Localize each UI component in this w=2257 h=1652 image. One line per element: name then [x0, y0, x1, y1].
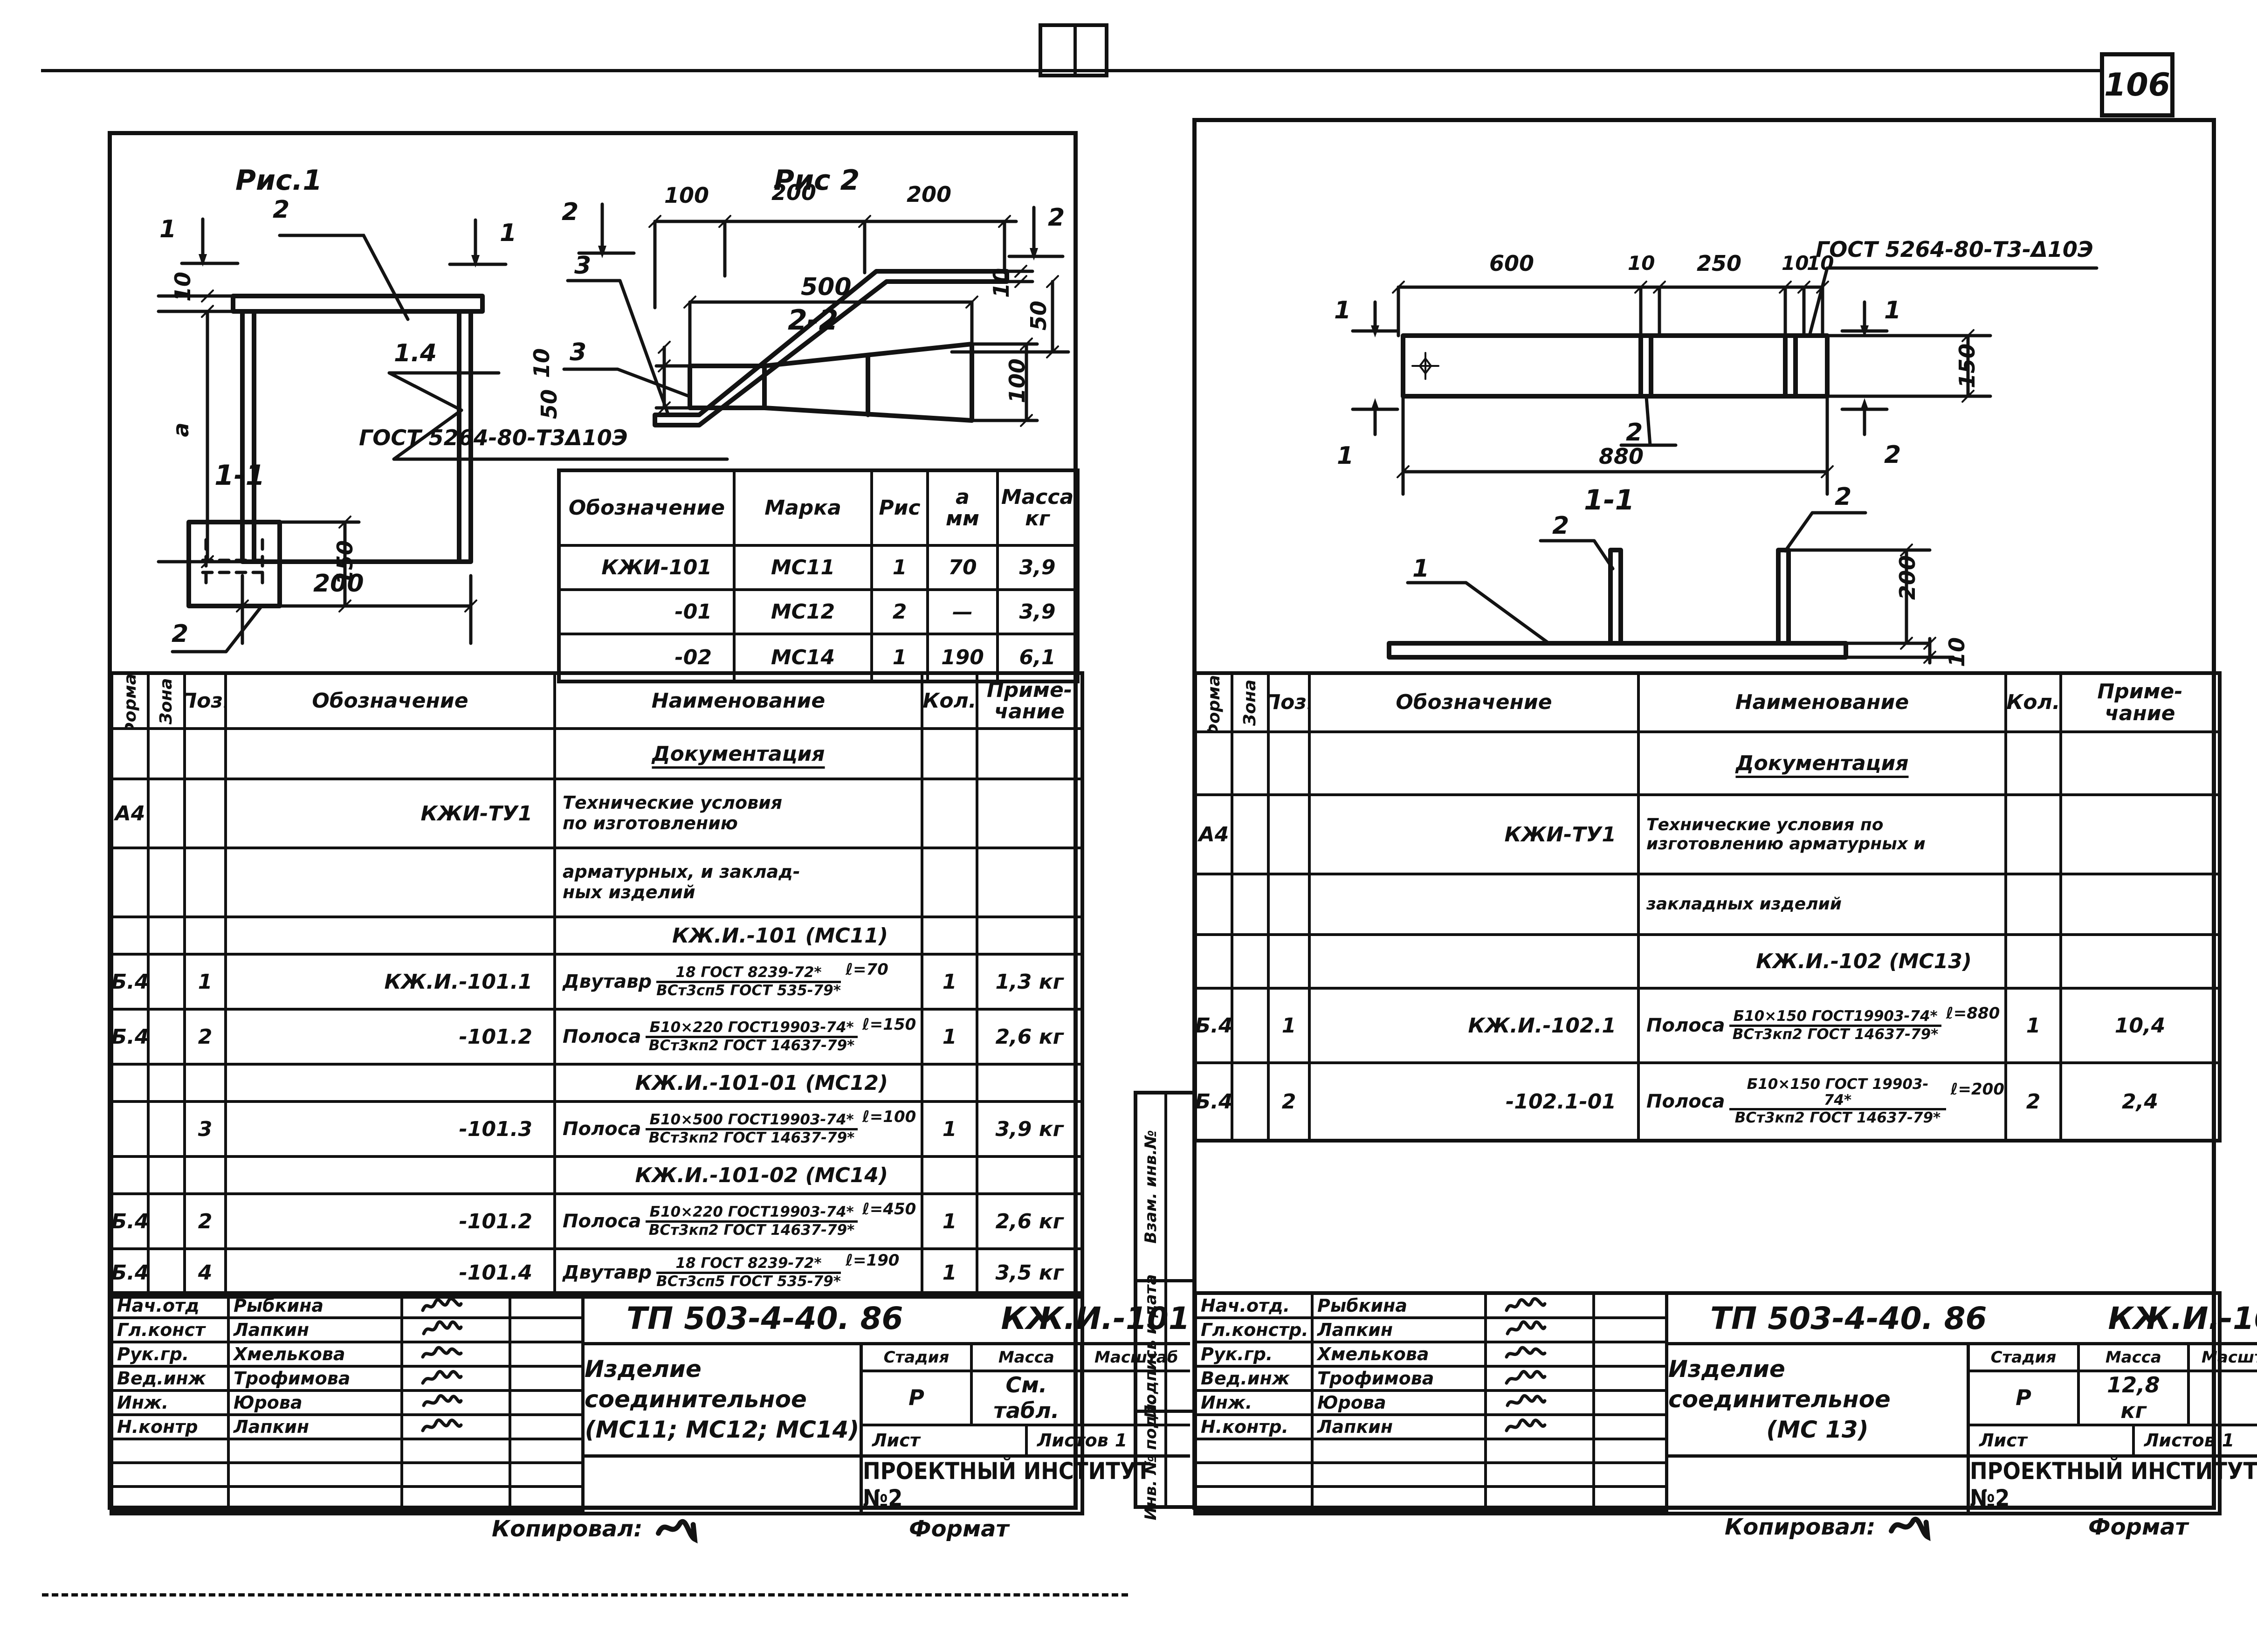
section-label-2a: 2: [1552, 512, 1569, 540]
spec-cell-name: ПолосаБ10×500 ГОСТ19903-74*ВСт3кп2 ГОСТ …: [556, 1103, 923, 1158]
spec-cell-oboz: КЖИ-ТУ1: [1311, 796, 1640, 875]
parts-header-marka: Марка: [736, 472, 873, 547]
fig2-callout-3b: 3: [570, 338, 586, 366]
fig2-dim-50-left: 50: [537, 367, 562, 441]
spec-header-qty: Кол.: [923, 675, 978, 730]
copied-by-label: Копировал:: [1725, 1514, 1875, 1540]
parts-cell: -01: [561, 591, 736, 635]
signature-scribble: [1487, 1368, 1595, 1392]
signature-scribble: [403, 1416, 511, 1440]
signature-scribble: [403, 1343, 511, 1368]
mass-value: См.табл.: [973, 1372, 1083, 1424]
section-title: 1-1: [1584, 484, 1634, 516]
spec-group-title: КЖ.И.-101 (МС11): [556, 918, 923, 956]
parts-cell: КЖИ-101: [561, 547, 736, 591]
strip-cell-podpis: Подпись и дата: [1137, 1282, 1167, 1409]
spec-header-oboz: Обозначение: [227, 675, 556, 730]
fig2-section-title: 2-2: [788, 304, 838, 337]
fold-mark-divider: [1073, 27, 1077, 74]
spec-group-title: КЖ.И.-101-02 (МС14): [556, 1158, 923, 1195]
title-block-codes: ТП 503-4-40. 86 КЖ.И.-101: [585, 1295, 1190, 1345]
spec-cell-name: арматурных, и заклад-ных изделий: [556, 849, 923, 918]
fig2-dim-100: 100: [664, 183, 709, 208]
fig2-dim-100-right: 100: [1005, 344, 1030, 418]
plan-dim-250: 250: [1697, 251, 1741, 276]
parts-cell: 2: [873, 591, 929, 635]
sheet-label: Лист: [1970, 1426, 2135, 1454]
spec-cell-name: ПолосаБ10×150 ГОСТ 19903-74*ВСт3кп2 ГОСТ…: [1640, 1064, 2007, 1139]
parts-table: Обозначение Марка Рис aмм Массакг КЖИ-10…: [557, 468, 1080, 683]
parts-cell: МС11: [736, 547, 873, 591]
sheet-label: Лист: [863, 1426, 1028, 1454]
signature-scribble: [1487, 1295, 1595, 1319]
fig2-dim-200b: 200: [907, 182, 951, 207]
spec-cell-name: Технические условияпо изготовлению: [556, 780, 923, 849]
title-block-codes: ТП 503-4-40. 86 КЖ.И.-102: [1668, 1295, 2257, 1345]
signature-scribble: [1487, 1416, 1595, 1440]
stage-value: Р: [863, 1372, 973, 1424]
parts-cell: МС12: [736, 591, 873, 635]
fig1-dim-150: 150: [332, 525, 358, 600]
plan-dim-880: 880: [1599, 444, 1644, 469]
spec-cell-name: Технические условия поизготовлению армат…: [1640, 796, 2007, 875]
spec-group-title: КЖ.И.-102 (МС13): [1640, 936, 2007, 990]
spec-header-poz: Поз.: [186, 675, 227, 730]
spec-cell-name: ПолосаБ10×220 ГОСТ19903-74*ВСт3кп2 ГОСТ …: [556, 1011, 923, 1066]
plan-dim-600: 600: [1489, 251, 1534, 276]
fig1-title: Рис.1: [235, 164, 322, 197]
spec-header-note: Приме-чание: [2062, 675, 2218, 733]
plan-dim-10c: 10: [1807, 252, 1834, 275]
spec-cell-name: закладных изделий: [1640, 875, 2007, 936]
fig1-section-mark-left: 1: [159, 215, 176, 243]
spec-cell-oboz: КЖИ-ТУ1: [227, 780, 556, 849]
fig1-section-title: 1-1: [214, 459, 265, 492]
item-title: Изделие соединительное(МС 13): [1668, 1345, 1970, 1454]
fig1-dim-a: a: [168, 392, 193, 467]
parts-cell: 3,9: [999, 591, 1076, 635]
fig1-callout-2: 2: [273, 196, 289, 224]
side-strip: Взам. инв.№ Подпись и дата Инв. № подл.: [1134, 1091, 1196, 1509]
spec-cell-format: А4: [113, 780, 150, 849]
parts-cell: 3,9: [999, 547, 1076, 591]
mass-value: 12,8кг: [2080, 1372, 2190, 1424]
title-block-right: Нач.отд.Рыбкина Гл.констр.Лапкин Рук.гр.…: [1193, 1291, 2222, 1515]
plan-flag-right-bottom: 2: [1884, 441, 1901, 469]
parts-header-ris: Рис: [873, 472, 929, 547]
fig2-section-mark-right: 2: [1048, 204, 1065, 232]
spec-doc-header: Документация: [1640, 733, 2007, 796]
signature-scribble: [1487, 1392, 1595, 1416]
signature-scribble: [653, 1513, 718, 1545]
spec-header-format: Формат: [113, 675, 150, 730]
fold-mark-box: [1039, 23, 1108, 77]
signature-scribble: [403, 1368, 511, 1392]
plan-weld-gost: ГОСТ 5264-80-Т3-Δ10Э: [1816, 237, 2093, 262]
copied-by-label: Копировал:: [492, 1516, 642, 1542]
spec-header-name: Наименование: [556, 675, 923, 730]
stage-header: Стадия: [863, 1345, 973, 1370]
spec-cell-name: ПолосаБ10×220 ГОСТ19903-74*ВСт3кп2 ГОСТ …: [556, 1195, 923, 1250]
parts-header-a: aмм: [929, 472, 999, 547]
signature-scribble: [1487, 1343, 1595, 1368]
doc-code: ТП 503-4-40. 86: [1710, 1301, 1987, 1336]
scale-value: [2190, 1372, 2257, 1424]
fig2-dim-50-right: 50: [1026, 278, 1051, 353]
item-title: Изделие соединительное(МС11; МС12; МС14): [585, 1345, 863, 1454]
spec-header-note: Приме-чание: [978, 675, 1080, 730]
scanned-drawing-page: 106 Рис.1 2 1 1 10 a 200 1.4 ГОСТ 5264-8…: [0, 0, 2257, 1652]
title-block-roles: Нач.отдРыбкина Гл.констЛапкин Рук.гр.Хме…: [113, 1295, 585, 1512]
fig2-callout-3a: 3: [574, 252, 591, 280]
fig1-section-mark-right: 1: [500, 219, 516, 247]
spec-table-right: Формат Зона Поз. Обозначение Наименовани…: [1193, 671, 2222, 1143]
signature-scribble: [403, 1295, 511, 1319]
spec-doc-header: Документация: [556, 730, 923, 780]
stage-header: Стадия: [1970, 1345, 2080, 1370]
spec-cell-format: А4: [1197, 796, 1233, 875]
plan-flag-right-top: 1: [1884, 296, 1901, 324]
fig2-dim-500: 500: [801, 273, 852, 301]
fig2-dim-200a: 200: [771, 180, 816, 205]
section-dim-200: 200: [1895, 540, 1920, 615]
signature-scribble: [1487, 1319, 1595, 1343]
parts-cell: —: [929, 591, 999, 635]
spec-group-title: КЖ.И.-101-01 (МС12): [556, 1066, 923, 1103]
signature-scribble: [403, 1392, 511, 1416]
plan-dim-150: 150: [1954, 329, 1980, 403]
spec-cell-name: Двутавр18 ГОСТ 8239-72*ВСт3сп5 ГОСТ 535-…: [556, 956, 923, 1011]
spec-table-left: Формат Зона Поз. Обозначение Наименовани…: [110, 671, 1084, 1299]
parts-header-oboz: Обозначение: [561, 472, 736, 547]
mass-header: Масса: [2080, 1345, 2190, 1370]
bottom-dashed-line: [42, 1593, 1128, 1597]
format-label: Формат: [2088, 1514, 2188, 1540]
fig1-weld-ref: 1.4: [394, 339, 437, 367]
scale-header: Масштаб: [2190, 1345, 2257, 1370]
spec-header-zona: Зона: [150, 675, 186, 730]
plan-dim-10b: 10: [1782, 252, 1809, 275]
fig2-section-mark-left: 2: [562, 198, 578, 226]
spec-header-name: Наименование: [1640, 675, 2007, 733]
signature-scribble: [403, 1319, 511, 1343]
plan-callout-2: 2: [1626, 419, 1643, 447]
plan-dim-10a: 10: [1628, 252, 1655, 275]
spec-header-format: Формат: [1197, 675, 1233, 733]
spec-cell-name: ПолосаБ10×150 ГОСТ19903-74*ВСт3кп2 ГОСТ …: [1640, 990, 2007, 1064]
fig1-callout-2b: 2: [172, 620, 188, 648]
doc-code: ТП 503-4-40. 86: [626, 1301, 903, 1336]
mass-header: Масса: [973, 1345, 1083, 1370]
fig2-dim-10-right: 10: [989, 246, 1014, 320]
stage-value: Р: [1970, 1372, 2080, 1424]
title-block-roles: Нач.отд.Рыбкина Гл.констр.Лапкин Рук.гр.…: [1197, 1295, 1668, 1512]
parts-cell: 1: [873, 547, 929, 591]
strip-cell-inv: Инв. № подл.: [1137, 1413, 1167, 1505]
organization-name: ПРОЕКТНЫЙ ИНСТИТУТ №2: [1970, 1458, 2257, 1512]
spec-header-zona: Зона: [1233, 675, 1270, 733]
strip-cell-vzam: Взам. инв.№: [1137, 1094, 1167, 1279]
sheets-label: Листов1: [2135, 1426, 2257, 1454]
parts-cell: 70: [929, 547, 999, 591]
signature-scribble: [1885, 1510, 1951, 1543]
sheet-code: КЖ.И.-102: [2108, 1301, 2257, 1336]
section-label-2b: 2: [1835, 483, 1851, 511]
spec-header-poz: Поз.: [1270, 675, 1311, 733]
section-label-1: 1: [1412, 555, 1429, 583]
page-number-box: 106: [2100, 52, 2174, 117]
spec-cell-name: Двутавр18 ГОСТ 8239-72*ВСт3сп5 ГОСТ 535-…: [556, 1250, 923, 1295]
plan-section-mark-1-bottom: 1: [1337, 442, 1354, 470]
title-block-left: Нач.отдРыбкина Гл.констЛапкин Рук.гр.Хме…: [110, 1291, 1084, 1515]
fig1-dim-10: 10: [170, 249, 195, 324]
spec-header-oboz: Обозначение: [1311, 675, 1640, 733]
plan-section-mark-1-top: 1: [1334, 296, 1351, 324]
spec-header-qty: Кол.: [2007, 675, 2062, 733]
page-number: 106: [2104, 67, 2170, 103]
parts-header-massa: Массакг: [999, 472, 1076, 547]
format-label: Формат: [909, 1516, 1009, 1542]
